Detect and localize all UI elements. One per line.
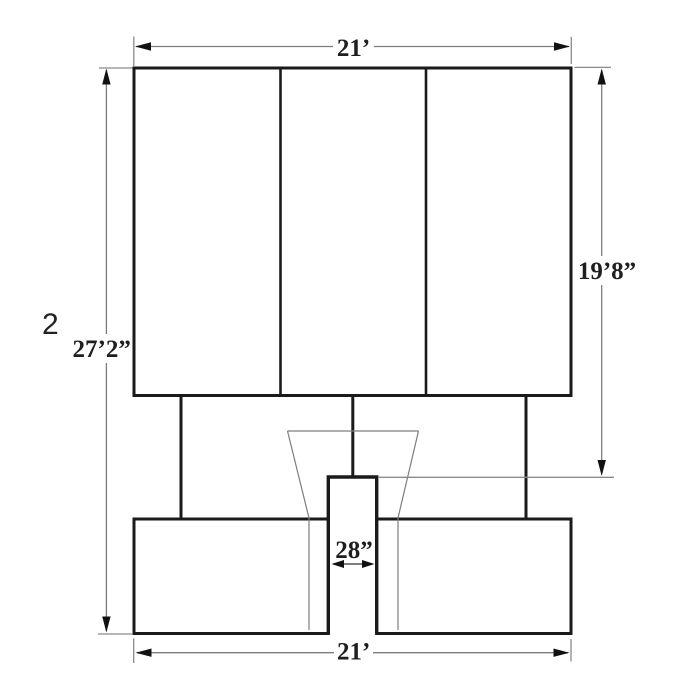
svg-text:27’2”: 27’2” [73, 336, 131, 363]
svg-text:2: 2 [42, 308, 59, 341]
svg-text:21’: 21’ [337, 639, 370, 666]
svg-text:19’8”: 19’8” [578, 258, 636, 285]
svg-text:21’: 21’ [337, 35, 370, 62]
svg-text:28”: 28” [335, 537, 373, 564]
